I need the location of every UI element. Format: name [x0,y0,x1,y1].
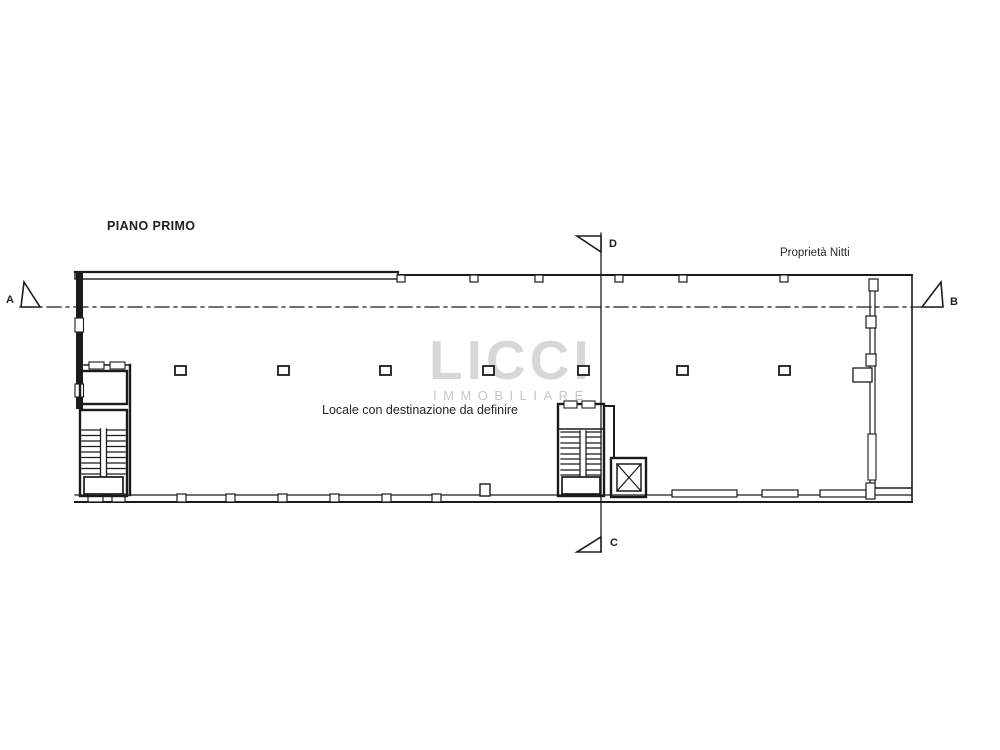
section-marker-d-label: D [609,238,617,250]
section-marker-a-label: A [6,294,14,306]
section-marker-c-label: C [610,537,618,549]
property-label: Proprietà Nitti [780,247,850,259]
floor-plan-page: LICCI IMMOBILIARE [0,0,1000,750]
text-layer: PIANO PRIMO Proprietà Nitti Locale con d… [0,0,1000,750]
plan-title: PIANO PRIMO [107,219,195,233]
section-marker-b-label: B [950,296,958,308]
room-label: Locale con destinazione da definire [322,403,518,417]
